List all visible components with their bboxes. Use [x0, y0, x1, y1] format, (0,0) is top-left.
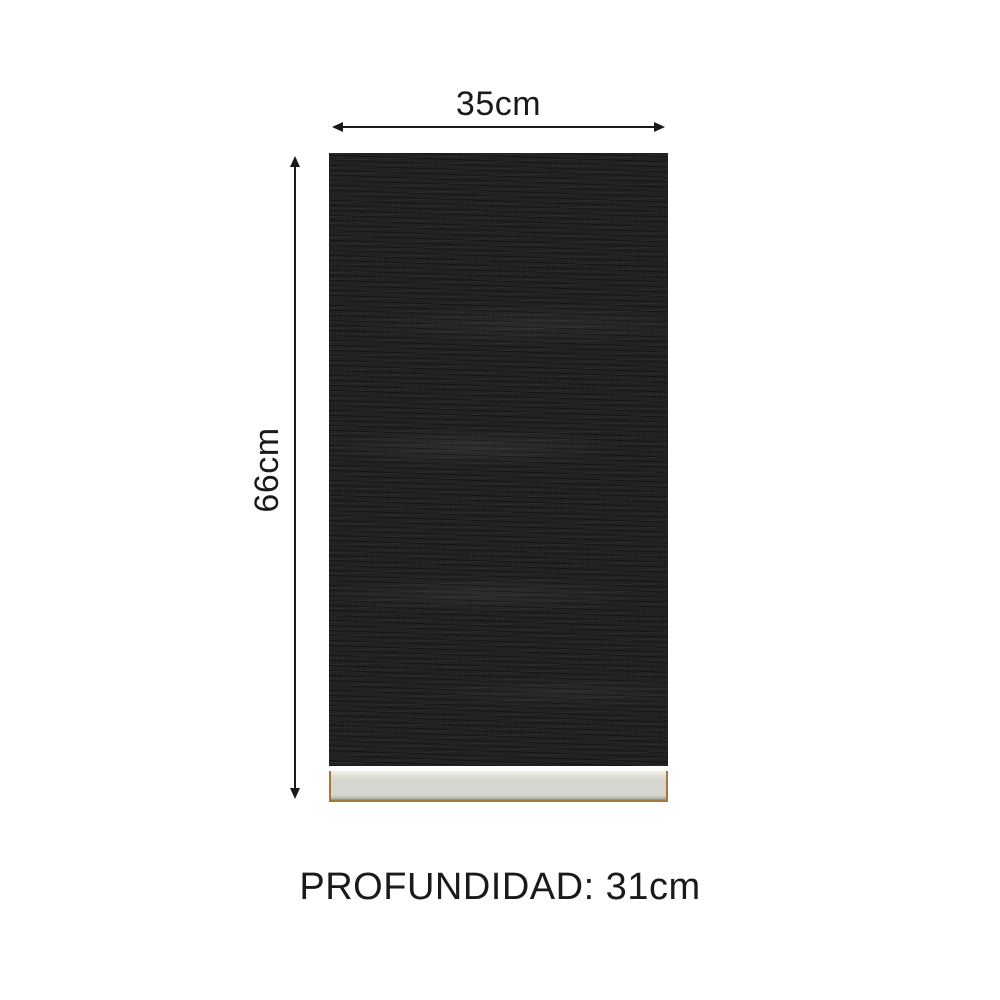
cabinet-base-strip	[329, 771, 668, 802]
depth-dimension-label: PROFUNDIDAD: 31cm	[0, 866, 1000, 909]
width-dimension-label: 35cm	[329, 84, 668, 124]
height-dimension-label: 66cm	[246, 410, 288, 530]
product-dimension-diagram: 35cm 66cm PROFUNDIDAD: 31cm	[0, 0, 1000, 1000]
cabinet-door-panel	[329, 153, 668, 766]
